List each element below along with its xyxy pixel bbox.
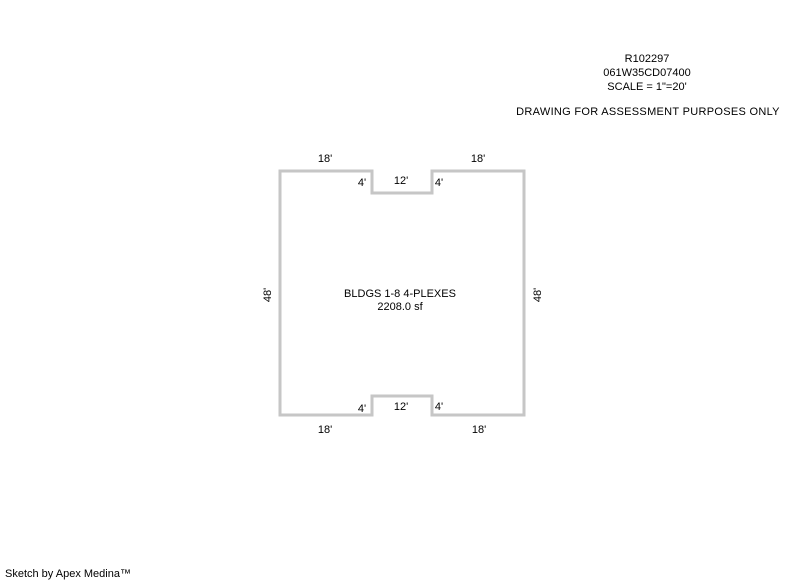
dim-top-left-18: 18'	[318, 153, 332, 165]
building-name: BLDGS 1-8 4-PLEXES	[344, 288, 456, 301]
dim-bottom-left-18: 18'	[318, 424, 332, 436]
dim-top-right-18: 18'	[471, 153, 485, 165]
dim-right-side-48: 48'	[532, 288, 544, 302]
dim-top-notch-right-4: 4'	[435, 177, 443, 189]
building-label-block: BLDGS 1-8 4-PLEXES 2208.0 sf	[344, 288, 456, 314]
dim-top-notch-12: 12'	[394, 175, 408, 187]
sketch-credit: Sketch by Apex Medina™	[5, 568, 131, 580]
assessor-sketch-page: R102297 061W35CD07400 SCALE = 1"=20' DRA…	[0, 0, 800, 587]
dim-bottom-notch-right-4: 4'	[435, 401, 443, 413]
dim-bottom-right-18: 18'	[472, 424, 486, 436]
dim-bottom-notch-left-4: 4'	[358, 403, 366, 415]
building-area: 2208.0 sf	[344, 301, 456, 314]
dim-bottom-notch-12: 12'	[394, 401, 408, 413]
dim-top-notch-left-4: 4'	[358, 177, 366, 189]
dim-left-side-48: 48'	[262, 288, 274, 302]
